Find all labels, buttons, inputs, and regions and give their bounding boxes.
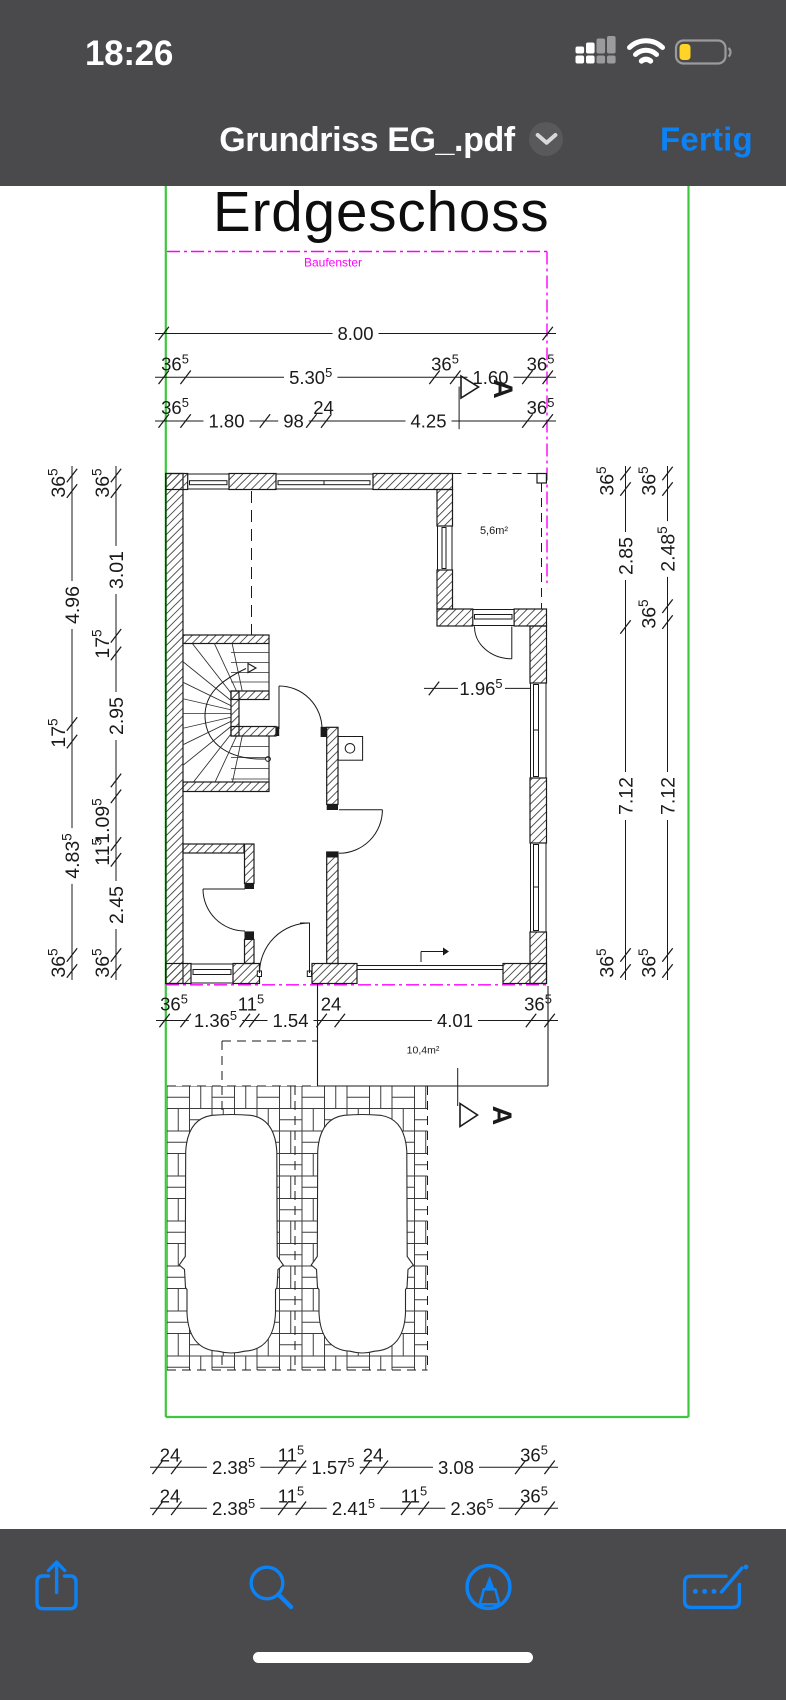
svg-text:Fertig: Fertig [660,121,753,158]
svg-text:4.01: 4.01 [437,1010,473,1031]
svg-text:A: A [487,1106,517,1126]
svg-text:3.01: 3.01 [106,551,128,589]
svg-text:24: 24 [160,1485,181,1506]
svg-text:8.00: 8.00 [337,323,373,344]
svg-text:Grundriss EG_.pdf: Grundriss EG_.pdf [219,121,516,159]
svg-text:1.80: 1.80 [208,411,244,432]
svg-text:24: 24 [160,1444,181,1465]
svg-text:7.12: 7.12 [658,777,680,815]
svg-text:7.12: 7.12 [616,777,638,815]
svg-text:Erdgeschoss: Erdgeschoss [213,180,550,243]
svg-text:2.85: 2.85 [616,537,638,575]
svg-text:24: 24 [321,994,342,1015]
svg-text:4.96: 4.96 [62,586,84,624]
svg-text:2.95: 2.95 [106,697,128,735]
svg-text:98: 98 [283,411,304,432]
svg-text:Baufenster: Baufenster [304,256,362,270]
svg-text:24: 24 [363,1444,384,1465]
svg-text:5,6m²: 5,6m² [480,525,508,537]
svg-text:10,4m²: 10,4m² [407,1045,440,1057]
svg-text:1.60: 1.60 [472,367,508,388]
svg-text:18:26: 18:26 [85,34,173,73]
svg-text:2.45: 2.45 [106,886,128,924]
svg-text:24: 24 [313,397,334,418]
svg-text:1.54: 1.54 [272,1010,308,1031]
svg-text:4.25: 4.25 [410,411,446,432]
svg-text:3.08: 3.08 [438,1457,474,1478]
